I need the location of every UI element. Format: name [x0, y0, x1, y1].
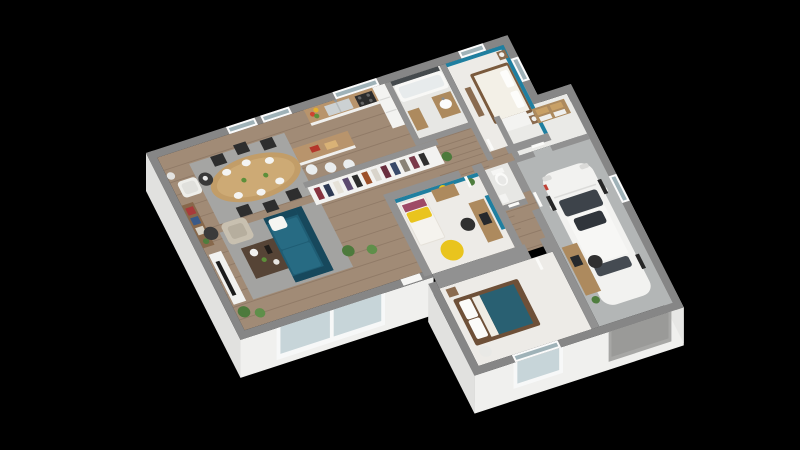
floor-plan-render [0, 0, 800, 450]
floor-plan-svg [0, 0, 800, 450]
